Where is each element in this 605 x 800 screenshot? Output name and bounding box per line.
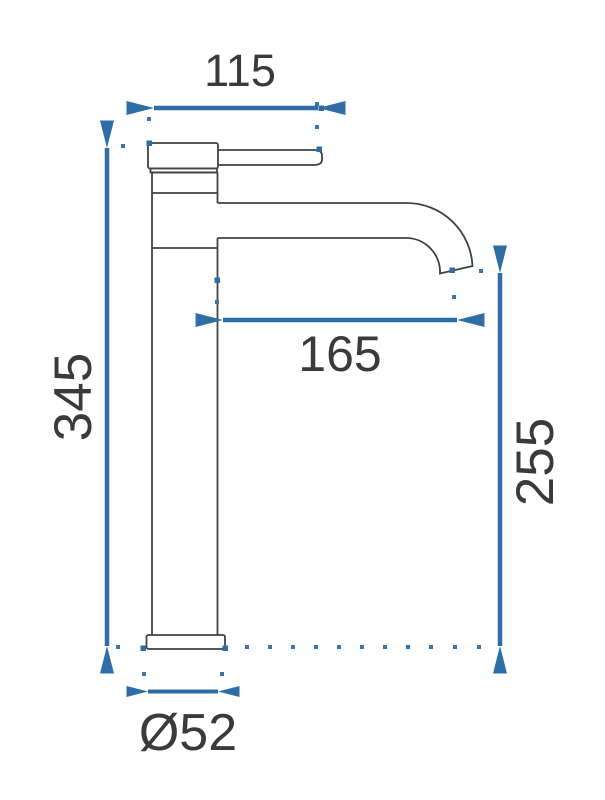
grip-marker	[450, 268, 456, 274]
dim-label-spout-reach: 165	[298, 326, 381, 382]
extension-dot	[291, 645, 295, 649]
extension-dot	[245, 645, 249, 649]
dim-label-outlet-height: 255	[506, 418, 565, 506]
faucet-handle-base	[148, 143, 218, 169]
extension-dot	[268, 645, 272, 649]
extension-dot	[215, 300, 219, 304]
grip-marker	[223, 646, 229, 652]
extension-dot	[429, 645, 433, 649]
grip-marker	[319, 106, 325, 112]
extension-dot	[453, 645, 457, 649]
extension-dot	[142, 672, 146, 676]
extension-dot	[452, 295, 456, 299]
extension-dot	[360, 645, 364, 649]
extension-dot	[121, 144, 125, 148]
extension-dot	[315, 102, 319, 106]
dim-label-base-diameter: Ø52	[139, 704, 237, 762]
extension-dot	[383, 645, 387, 649]
grip-marker	[215, 278, 221, 284]
faucet-lever	[215, 150, 322, 165]
faucet-dimension-drawing: 115 165 345 255 Ø52	[0, 0, 605, 800]
extension-dot	[147, 117, 151, 121]
grip-marker	[317, 147, 323, 153]
extension-dot	[116, 645, 120, 649]
dim-label-total-height: 345	[44, 353, 103, 441]
extension-dot	[220, 672, 224, 676]
faucet-body	[152, 173, 218, 636]
faucet-spout	[218, 203, 473, 274]
faucet-base-flange	[147, 635, 226, 649]
drawing-canvas: 115 165 345 255 Ø52	[0, 0, 605, 800]
extension-dot	[406, 645, 410, 649]
grip-marker	[141, 646, 147, 652]
extension-dot	[337, 645, 341, 649]
grip-marker	[147, 141, 153, 147]
extension-dot	[479, 269, 483, 273]
extension-dot	[314, 645, 318, 649]
extension-dot	[315, 125, 319, 129]
dim-label-top-width: 115	[204, 45, 276, 96]
extension-dot	[477, 645, 481, 649]
extension-dots	[116, 102, 483, 676]
faucet-outline	[147, 143, 473, 649]
dimension-lines	[107, 108, 500, 692]
